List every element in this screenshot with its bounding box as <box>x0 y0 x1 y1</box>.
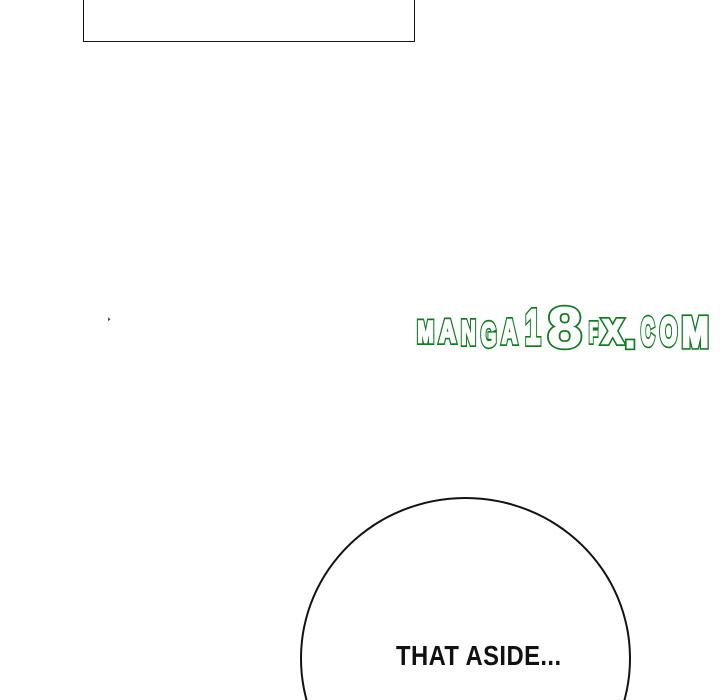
svg-text:N: N <box>461 314 475 351</box>
svg-text:G: G <box>481 316 496 353</box>
svg-text:8: 8 <box>547 296 582 357</box>
svg-text:F: F <box>589 317 597 348</box>
svg-text:A: A <box>439 313 455 349</box>
svg-text:A: A <box>502 313 517 350</box>
svg-text:1: 1 <box>525 300 540 355</box>
svg-text:X: X <box>603 313 623 350</box>
svg-text:C: C <box>641 311 654 353</box>
svg-text:M: M <box>682 309 708 356</box>
svg-text:M: M <box>418 316 434 349</box>
svg-text:O: O <box>660 311 677 354</box>
